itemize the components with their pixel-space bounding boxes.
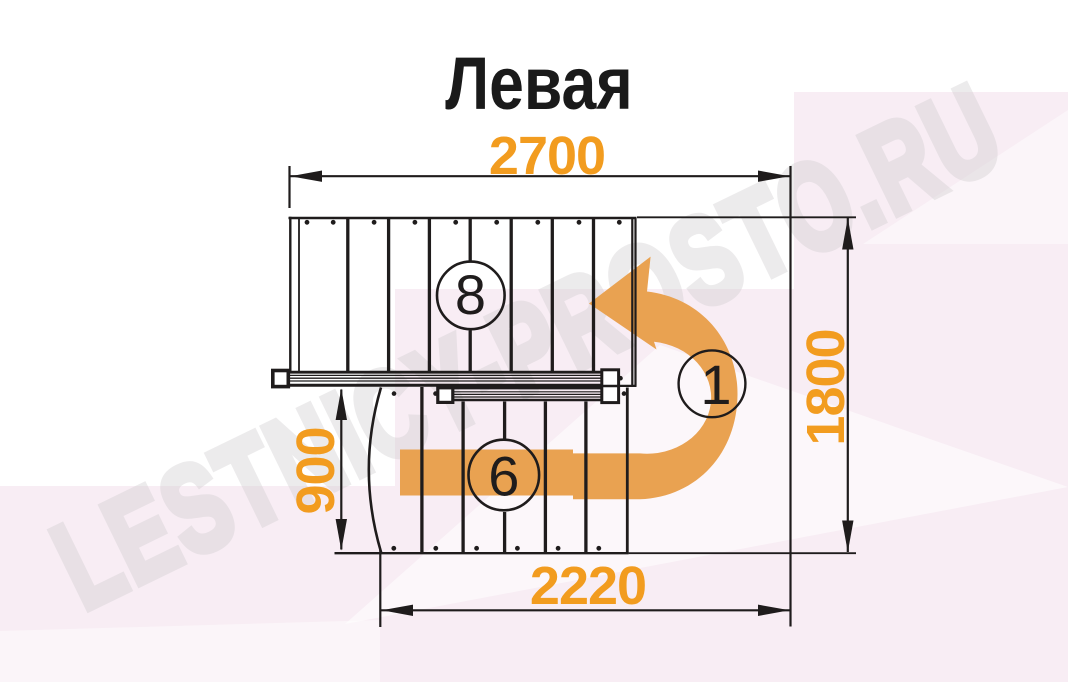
svg-text:6: 6	[488, 445, 519, 508]
svg-text:Левая: Левая	[445, 42, 633, 125]
svg-text:1: 1	[700, 353, 731, 416]
svg-text:2700: 2700	[489, 126, 605, 186]
svg-text:900: 900	[286, 427, 346, 514]
svg-text:1800: 1800	[796, 329, 856, 445]
svg-text:8: 8	[455, 263, 486, 326]
svg-text:2220: 2220	[530, 556, 646, 616]
